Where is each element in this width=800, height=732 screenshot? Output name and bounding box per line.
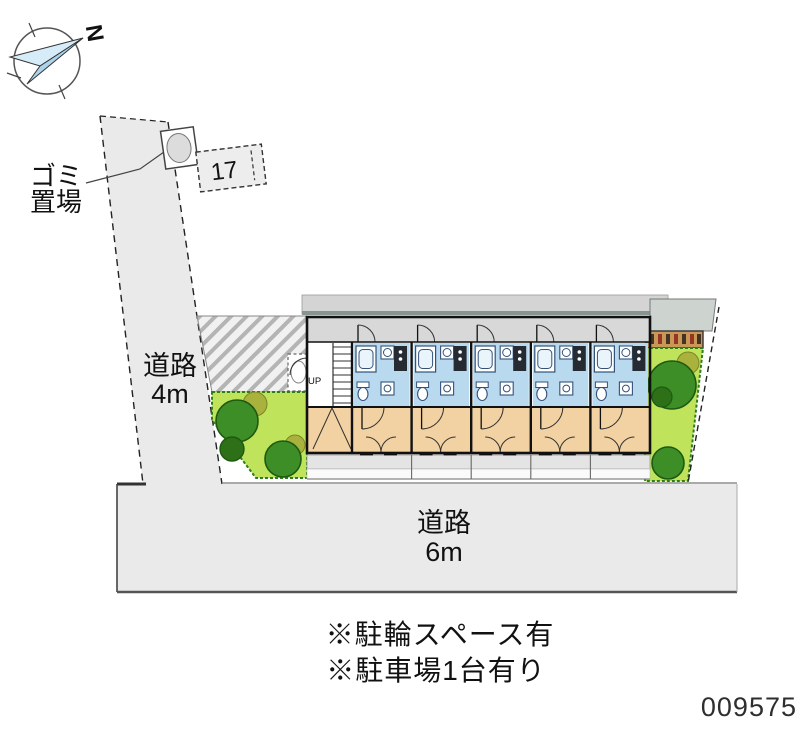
stairs-up-label: UP <box>308 376 321 387</box>
tree <box>652 387 672 407</box>
site-plan-page: 17 <box>0 0 800 732</box>
bike-slot <box>666 334 670 344</box>
balcony-edge <box>307 469 650 479</box>
balcony-strip <box>307 455 650 479</box>
note-car: ※駐車場1台有り <box>326 655 546 686</box>
apartment-building: UP <box>290 317 650 455</box>
garbage-storage-box <box>161 127 199 169</box>
road-south-name: 道路 <box>417 508 471 538</box>
bike-slot <box>682 334 686 344</box>
parking-stall-number: 17 <box>209 156 239 186</box>
tree <box>652 447 684 479</box>
bike-slot <box>658 334 662 344</box>
site-plan-drawing: 17 <box>0 0 800 732</box>
road-west-name: 道路 <box>143 351 197 381</box>
living-room-floor <box>308 407 649 453</box>
garbage-label-line2: 置場 <box>30 187 82 217</box>
property-number: 009575 <box>701 692 797 722</box>
bike-slot <box>697 334 701 344</box>
bike-shelter-roof <box>650 299 716 331</box>
parking-stall: 17 <box>196 144 266 192</box>
bike-slot <box>674 334 678 344</box>
bike-slot <box>690 334 694 344</box>
balcony-floor <box>307 455 650 469</box>
tree <box>216 400 258 442</box>
tree <box>220 437 244 461</box>
note-bicycle: ※駐輪スペース有 <box>326 619 555 650</box>
tree <box>265 441 301 477</box>
corridor <box>308 318 649 342</box>
road-west-width: 4m <box>151 379 189 409</box>
road-south-width: 6m <box>425 537 463 567</box>
